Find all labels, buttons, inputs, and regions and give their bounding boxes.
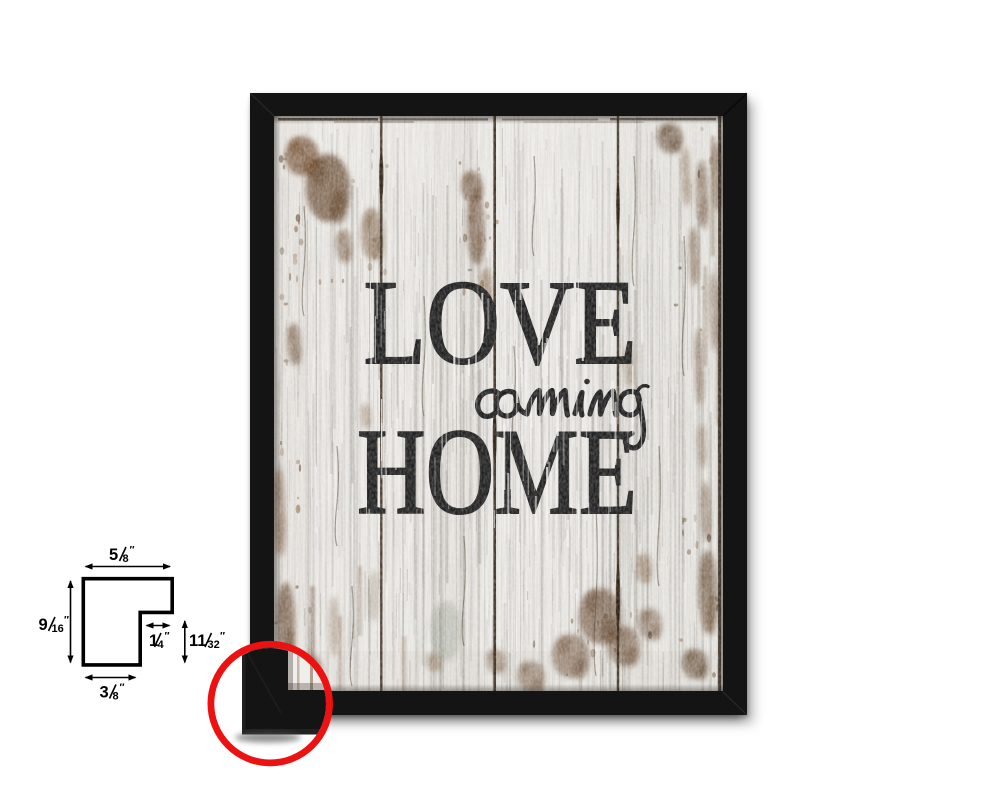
svg-text:5: 5 [109,546,118,564]
svg-text:3: 3 [100,684,109,702]
svg-text:″: ″ [120,682,125,694]
svg-text:″: ″ [64,614,69,626]
svg-text:4: 4 [158,639,165,651]
svg-text:9: 9 [39,616,48,634]
svg-text:8: 8 [113,691,119,703]
svg-text:″: ″ [130,544,135,556]
svg-text:8: 8 [123,553,129,565]
svg-text:″: ″ [165,630,170,642]
svg-text:16: 16 [52,623,64,635]
